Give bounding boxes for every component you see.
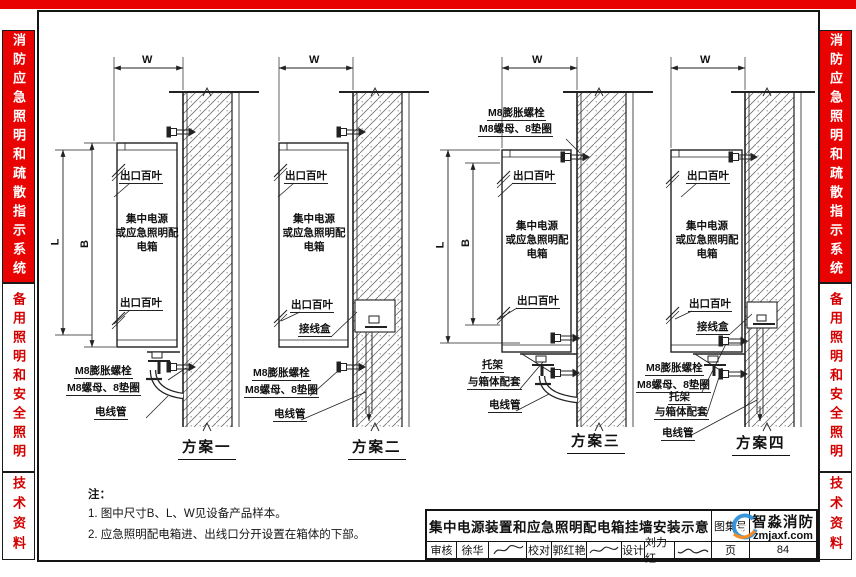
note-item-2: 2. 应急照明配电箱进、出线口分开设置在箱体的下部。 xyxy=(88,526,365,542)
label-conduit-2: 电线管 xyxy=(273,408,307,422)
page-number: 84 xyxy=(750,542,816,558)
signature-icon xyxy=(491,543,525,557)
dim-w-scheme2: W xyxy=(309,54,319,66)
label-bracket-3: 托架 xyxy=(481,359,504,373)
proofreader-label: 校对 xyxy=(527,542,552,558)
label-louver-top-2: 出口百叶 xyxy=(284,170,328,184)
page-label: 页 xyxy=(712,542,750,558)
dim-l-scheme3: L xyxy=(434,242,446,249)
label-nut-washer-1: M8螺母、8垫圈 xyxy=(66,382,141,396)
label-box-4: 集中电源 或应急照明配 电箱 xyxy=(672,219,742,262)
signature-icon xyxy=(588,543,620,557)
label-box-3: 集中电源 或应急照明配 电箱 xyxy=(503,219,571,262)
reviewer-name: 徐华 xyxy=(457,542,489,558)
brand-cell: 智淼消防 zmjaxf.com xyxy=(750,511,816,542)
label-box-1: 集中电源 或应急照明配 电箱 xyxy=(114,212,180,255)
label-box-2: 集中电源 或应急照明配 电箱 xyxy=(280,212,348,255)
drawing-frame xyxy=(37,10,820,562)
label-louver-top-4: 出口百叶 xyxy=(686,170,730,184)
label-nut-washer-2: M8螺母、8垫圈 xyxy=(244,384,319,398)
dim-w-scheme1: W xyxy=(142,54,152,66)
brand-name: 智淼消防 xyxy=(752,511,814,532)
label-louver-bottom-1: 出口百叶 xyxy=(119,297,163,311)
title-block: 集中电源装置和应急照明配电箱挂墙安装示意 图集号 智淼消防 zmjaxf.com… xyxy=(425,509,818,560)
reviewer-label: 审核 xyxy=(427,542,457,558)
label-bracket-4: 托架 xyxy=(668,391,691,405)
caption-scheme2: 方案二 xyxy=(348,436,406,460)
brand-site: zmjaxf.com xyxy=(753,530,813,542)
dim-b-scheme3: B xyxy=(460,239,472,247)
top-red-bar xyxy=(0,0,856,9)
proofreader-name: 郭红艳 xyxy=(552,542,587,558)
label-expansion-bolt-4: M8膨胀螺栓 xyxy=(645,362,704,376)
label-louver-top-3: 出口百叶 xyxy=(512,170,556,184)
label-louver-bottom-3: 出口百叶 xyxy=(516,295,560,309)
dim-w-scheme4: W xyxy=(700,54,710,66)
drawing-page: { "sidebar": { "system_title": "消防应急照明和疏… xyxy=(0,0,856,577)
label-louver-bottom-4: 出口百叶 xyxy=(688,298,732,312)
caption-scheme3: 方案三 xyxy=(567,430,625,454)
label-junction-box-2: 接线盒 xyxy=(298,323,332,337)
note-item-1: 1. 图中尺寸B、L、W见设备产品样本。 xyxy=(88,505,287,521)
caption-scheme1: 方案一 xyxy=(178,436,236,460)
sidebar-left-system-title: 消防应急照明和疏散指示系统 xyxy=(2,30,35,283)
sidebar-right-section-title: 备用照明和安全照明 xyxy=(819,283,852,472)
label-expansion-bolt-2: M8膨胀螺栓 xyxy=(252,367,311,381)
designer-label: 设计 xyxy=(622,542,645,558)
label-conduit-4: 电线管 xyxy=(661,427,695,441)
label-louver-bottom-2: 出口百叶 xyxy=(290,299,334,313)
label-conduit-1: 电线管 xyxy=(94,406,128,420)
label-bracket-match-4: 与箱体配套 xyxy=(654,406,709,420)
sidebar-right-system-title: 消防应急照明和疏散指示系统 xyxy=(819,30,852,283)
designer-signature xyxy=(675,542,712,558)
label-junction-box-4: 接线盒 xyxy=(696,321,730,335)
brand-logo-icon xyxy=(729,513,759,543)
dim-b-scheme1: B xyxy=(79,240,91,248)
sidebar-right-doc-type: 技术资料 xyxy=(819,472,852,560)
dim-l-scheme1: L xyxy=(49,239,61,246)
dim-w-scheme3: W xyxy=(532,54,542,66)
caption-scheme4: 方案四 xyxy=(732,432,790,456)
sidebar-left-doc-type: 技术资料 xyxy=(2,472,35,560)
reviewer-signature xyxy=(489,542,527,558)
label-expansion-bolt-3: M8膨胀螺栓 xyxy=(487,107,546,121)
proofreader-signature xyxy=(587,542,622,558)
label-nut-washer-3: M8螺母、8垫圈 xyxy=(478,123,553,137)
sidebar-left-section-title: 备用照明和安全照明 xyxy=(2,283,35,472)
label-conduit-3: 电线管 xyxy=(488,399,522,413)
label-louver-top-1: 出口百叶 xyxy=(119,170,163,184)
signature-icon xyxy=(676,543,710,557)
notes-heading: 注： xyxy=(88,486,111,502)
label-bracket-match-3: 与箱体配套 xyxy=(467,376,522,390)
label-expansion-bolt-1: M8膨胀螺栓 xyxy=(74,365,133,379)
designer-name: 刘力红 xyxy=(645,542,675,558)
